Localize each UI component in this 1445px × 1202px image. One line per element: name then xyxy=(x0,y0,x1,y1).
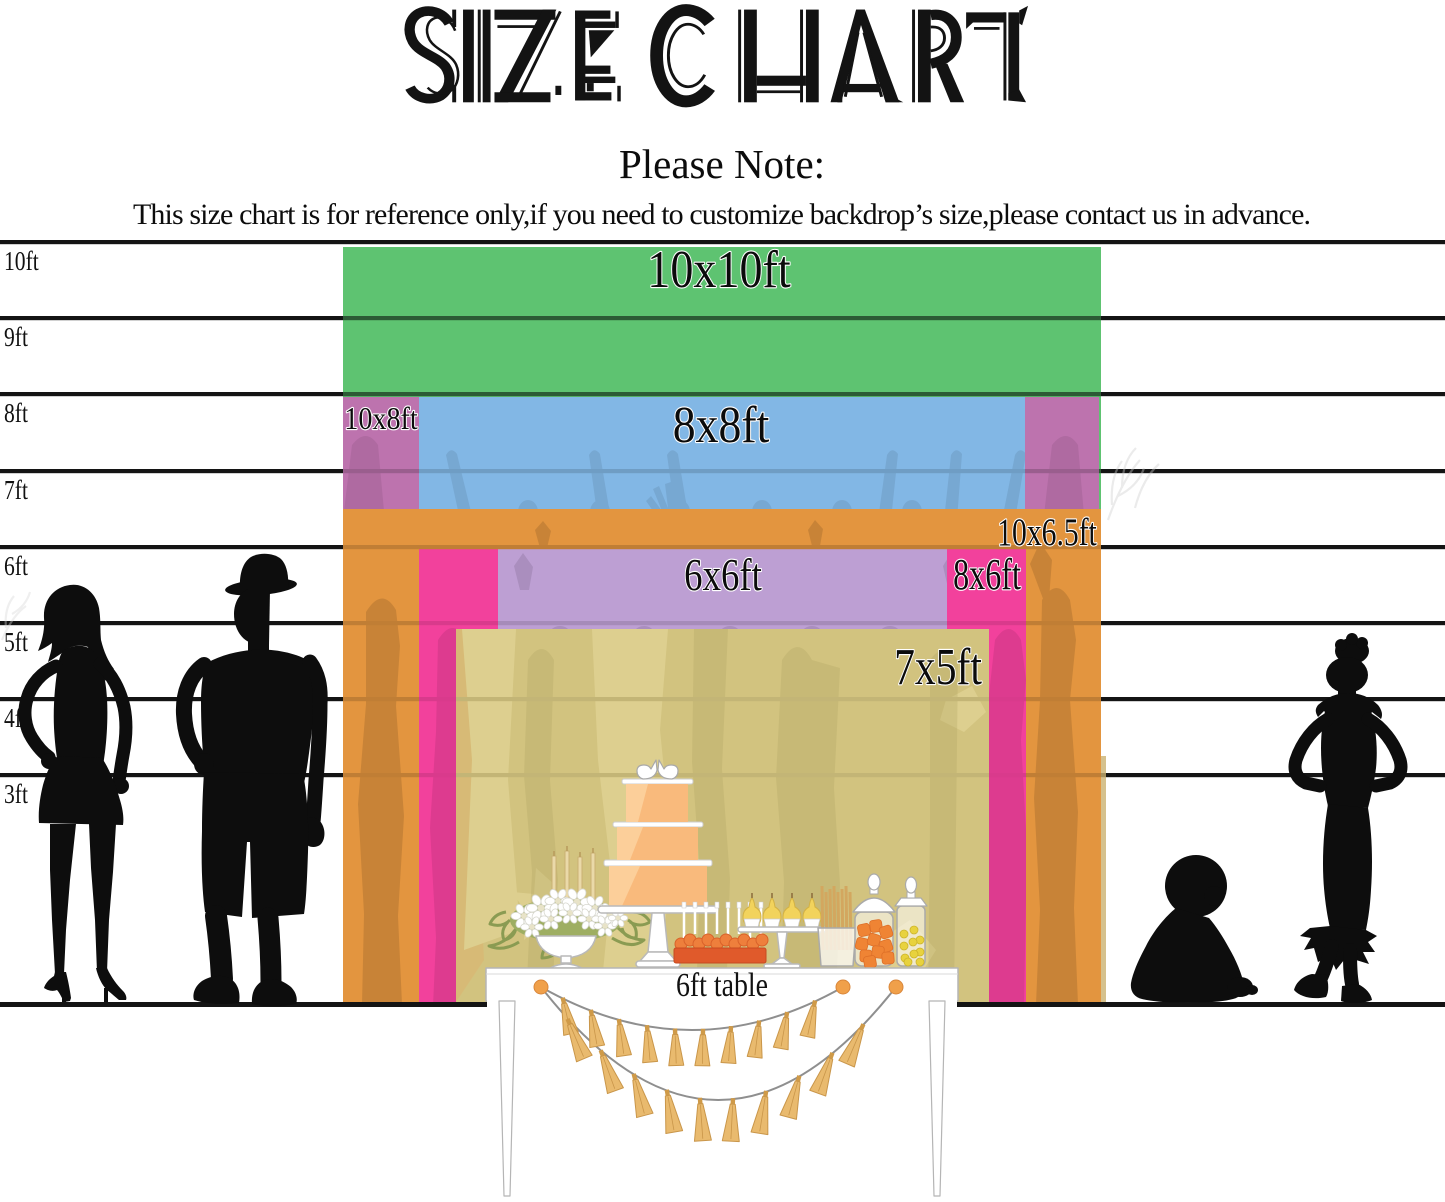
svg-text:9ft: 9ft xyxy=(4,323,28,353)
svg-text:10ft: 10ft xyxy=(4,247,39,277)
svg-text:This size chart is for referen: This size chart is for reference only,if… xyxy=(133,198,1311,231)
svg-text:8x6ft: 8x6ft xyxy=(953,551,1021,599)
svg-text:5ft: 5ft xyxy=(4,628,28,658)
svg-text:7x5ft: 7x5ft xyxy=(894,639,982,696)
svg-text:8x8ft: 8x8ft xyxy=(673,395,770,453)
svg-text:Please Note:: Please Note: xyxy=(619,141,825,187)
svg-text:6x6ft: 6x6ft xyxy=(684,550,762,601)
svg-text:8ft: 8ft xyxy=(4,399,28,429)
svg-text:10x10ft: 10x10ft xyxy=(647,240,791,299)
svg-text:3ft: 3ft xyxy=(4,780,28,810)
svg-text:6ft table: 6ft table xyxy=(676,965,768,1003)
svg-text:10x6.5ft: 10x6.5ft xyxy=(997,511,1097,554)
svg-text:6ft: 6ft xyxy=(4,552,28,582)
svg-text:10x8ft: 10x8ft xyxy=(344,400,418,436)
svg-text:7ft: 7ft xyxy=(4,476,28,506)
